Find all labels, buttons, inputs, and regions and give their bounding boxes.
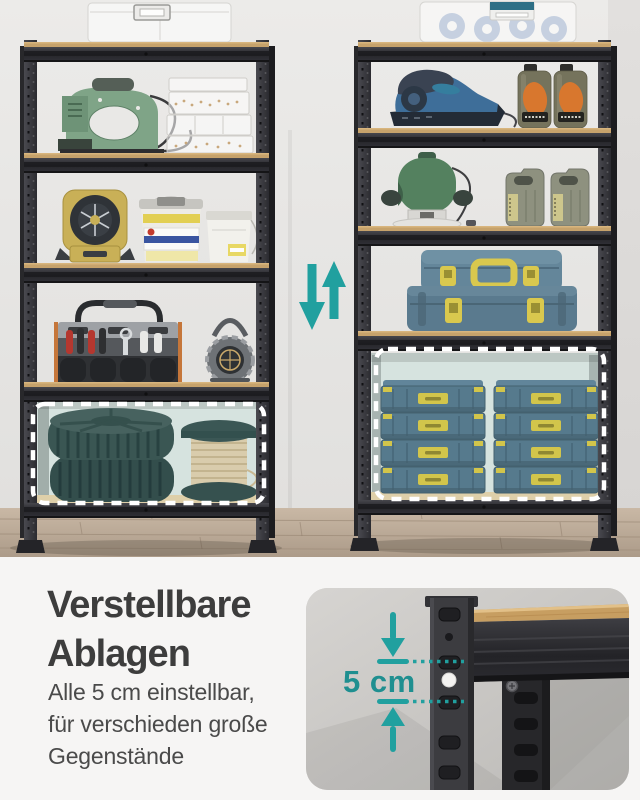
detail-card-svg: 5 cm	[306, 588, 629, 790]
heading-line-2: Ablagen	[47, 630, 250, 679]
shelf-board-closeup	[472, 604, 629, 682]
wall-crease	[288, 130, 292, 508]
right-unit-foot-left	[350, 538, 379, 551]
shelf-pin-plug	[442, 673, 456, 687]
body-line-2: für verschieden große	[48, 708, 268, 740]
bin-with-tape-rolls	[420, 2, 576, 42]
clear-hardware-boxes	[167, 78, 253, 153]
stacked-tires	[48, 408, 174, 502]
caption-heading: Verstellbare Ablagen	[47, 581, 250, 679]
product-image: Verstellbare Ablagen Alle 5 cm einstellb…	[0, 0, 640, 800]
right-unit-foot-right	[590, 538, 619, 551]
front-post	[425, 596, 478, 790]
detail-card: 5 cm	[306, 588, 629, 790]
scene-svg	[0, 0, 640, 557]
right-unit-post-left	[358, 40, 371, 538]
photo-scene	[0, 0, 640, 557]
wire-spool	[181, 420, 257, 502]
caption-body: Alle 5 cm einstellbar, für verschieden g…	[48, 676, 268, 772]
measure-arrow-up-shaft	[390, 726, 396, 752]
stacked-toolboxes	[407, 250, 577, 331]
measure-arrow-down-shaft	[390, 612, 396, 640]
translucent-storage-boxes	[88, 3, 231, 42]
rear-post	[502, 678, 550, 790]
body-line-1: Alle 5 cm einstellbar,	[48, 676, 268, 708]
heading-line-1: Verstellbare	[47, 581, 250, 630]
left-unit-foot-left	[16, 540, 45, 553]
left-unit-foot-right	[248, 540, 277, 553]
left-unit-post-left	[24, 40, 37, 540]
measurement-label: 5 cm	[343, 664, 416, 699]
body-line-3: Gegenstände	[48, 740, 268, 772]
paint-bucket	[139, 197, 203, 262]
